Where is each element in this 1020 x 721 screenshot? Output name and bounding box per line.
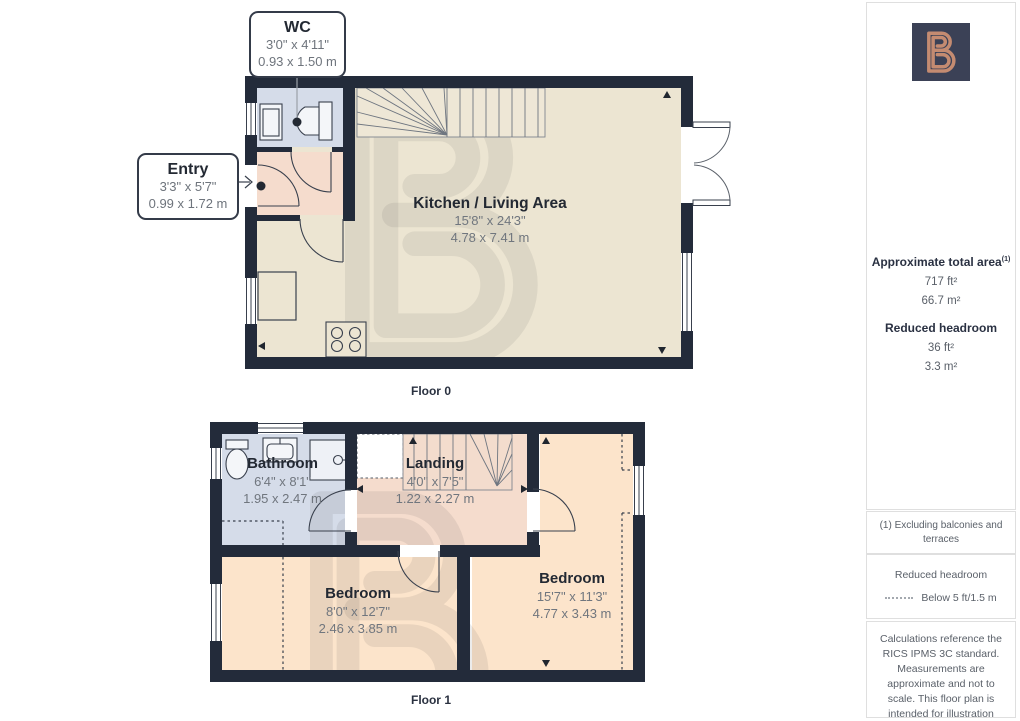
landing-dims-metric: 1.22 x 2.27 m — [365, 491, 505, 508]
bedroom-left-dims-metric: 2.46 x 3.85 m — [285, 621, 431, 638]
footnote-text: (1) Excluding balconies and terraces — [867, 512, 1015, 553]
entry-dims-metric: 0.99 x 1.72 m — [143, 196, 233, 213]
bathroom-dims-imperial: 6'4" x 8'1" — [205, 474, 360, 491]
reduced-headroom-heading: Reduced headroom — [867, 321, 1015, 335]
bedroom-left-title: Bedroom — [285, 585, 431, 604]
wc-callout: WC 3'0" x 4'11" 0.93 x 1.50 m — [249, 11, 346, 78]
bedroom-right-dims-metric: 4.77 x 3.43 m — [499, 606, 645, 623]
landing-label: Landing 4'0" x 7'5" 1.22 x 2.27 m — [365, 455, 505, 508]
bathroom-label: Bathroom 6'4" x 8'1" 1.95 x 2.47 m — [205, 455, 360, 508]
landing-title: Landing — [365, 455, 505, 474]
disclaimer-text: Calculations reference the RICS IPMS 3C … — [867, 622, 1015, 721]
sidebar-footnote-panel: (1) Excluding balconies and terraces — [866, 511, 1016, 554]
area-summary: Approximate total area(1) 717 ft² 66.7 m… — [867, 255, 1015, 373]
sidebar-disclaimer-panel: Calculations reference the RICS IPMS 3C … — [866, 621, 1016, 718]
floor0-label: Floor 0 — [356, 384, 506, 398]
bedroom-right-label: Bedroom 15'7" x 11'3" 4.77 x 3.43 m — [499, 570, 645, 623]
sidebar-main-panel: Approximate total area(1) 717 ft² 66.7 m… — [866, 2, 1016, 510]
footnote-ref: (1) — [1002, 256, 1011, 263]
french-doors — [681, 122, 730, 206]
bathroom-dims-metric: 1.95 x 2.47 m — [205, 491, 360, 508]
staircase — [357, 88, 545, 137]
wc-dims-metric: 0.93 x 1.50 m — [255, 54, 340, 71]
total-area-imperial: 717 ft² — [867, 276, 1015, 288]
kitchen-hob — [326, 322, 366, 357]
total-area-metric: 66.7 m² — [867, 295, 1015, 307]
kitchen-label: Kitchen / Living Area 15'8" x 24'3" 4.78… — [385, 194, 595, 247]
bedroom-left-dims-imperial: 8'0" x 12'7" — [285, 604, 431, 621]
brand-logo — [912, 23, 970, 81]
entry-title: Entry — [143, 160, 233, 179]
kitchen-dims-imperial: 15'8" x 24'3" — [385, 213, 595, 230]
legend-heading: Reduced headroom — [867, 569, 1015, 581]
kitchen-title: Kitchen / Living Area — [385, 194, 595, 213]
total-area-heading: Approximate total area(1) — [867, 255, 1015, 269]
reduced-headroom-metric: 3.3 m² — [867, 361, 1015, 373]
bedroom-left-label: Bedroom 8'0" x 12'7" 2.46 x 3.85 m — [285, 585, 431, 638]
floorplan-page: WC 3'0" x 4'11" 0.93 x 1.50 m Entry 3'3"… — [0, 0, 1020, 721]
entry-callout: Entry 3'3" x 5'7" 0.99 x 1.72 m — [137, 153, 239, 220]
wc-sink — [260, 104, 282, 140]
legend-item: Below 5 ft/1.5 m — [921, 592, 996, 604]
bedroom-right-title: Bedroom — [499, 570, 645, 589]
entry-dims-imperial: 3'3" x 5'7" — [143, 179, 233, 196]
wc-title: WC — [255, 18, 340, 37]
dashed-line-icon — [885, 597, 913, 599]
bathroom-title: Bathroom — [205, 455, 360, 474]
sidebar-legend-panel: Reduced headroom Below 5 ft/1.5 m — [866, 554, 1016, 619]
wc-dims-imperial: 3'0" x 4'11" — [255, 37, 340, 54]
bedroom-right-dims-imperial: 15'7" x 11'3" — [499, 589, 645, 606]
reduced-headroom-imperial: 36 ft² — [867, 342, 1015, 354]
floor1-label: Floor 1 — [356, 693, 506, 707]
kitchen-dims-metric: 4.78 x 7.41 m — [385, 230, 595, 247]
landing-dims-imperial: 4'0" x 7'5" — [365, 474, 505, 491]
